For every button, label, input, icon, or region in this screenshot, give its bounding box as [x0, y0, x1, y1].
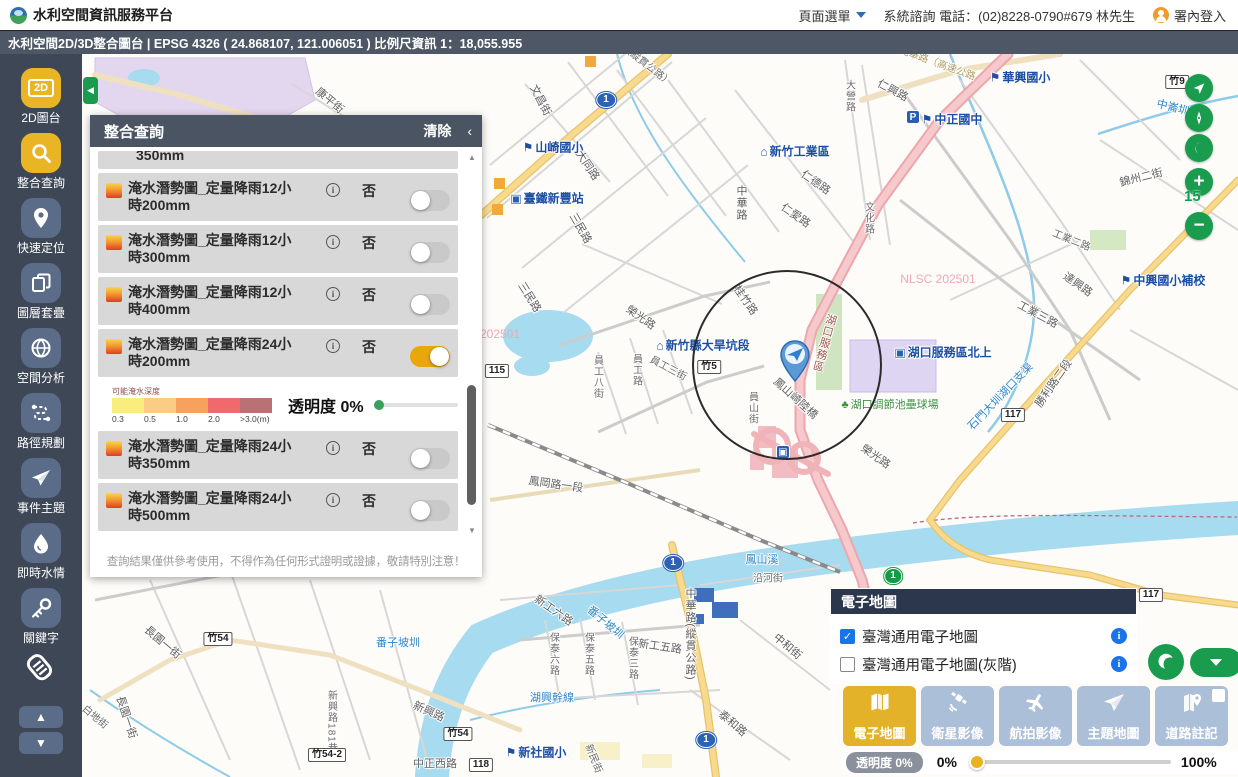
- basemap-collapse-button[interactable]: [1190, 648, 1238, 677]
- layer-label: 淹水潛勢圖_定量降雨24小 時200mm: [128, 336, 320, 370]
- sidebar-item-label: 路徑規劃: [17, 436, 65, 451]
- sidebar-item-label: 關鍵字: [23, 631, 59, 646]
- layer-flag: 否: [362, 337, 376, 357]
- person-icon: [1153, 7, 1169, 23]
- page-menu-button[interactable]: 頁面選單: [799, 6, 866, 25]
- basemap-options: ✓臺灣通用電子地圖i臺灣通用電子地圖(灰階)i: [830, 614, 1137, 684]
- layer-toggle[interactable]: [410, 448, 450, 469]
- scroll-up-icon[interactable]: ▲: [466, 153, 478, 162]
- legend-tick: 2.0: [208, 414, 240, 424]
- query-panel-header: 整合查詢 清除 ‹: [90, 115, 482, 147]
- map-status-text: 水利空間2D/3D整合圖台 | EPSG 4326 ( 24.868107, 1…: [8, 33, 522, 52]
- sidebar-item-label: 空間分析: [17, 371, 65, 386]
- legend-tick: 0.5: [144, 414, 176, 424]
- basemap-button-衛星影像[interactable]: 衛星影像: [921, 686, 994, 746]
- query-location-marker: [778, 339, 812, 383]
- sidebar: 2D2D圖台整合查詢快速定位圖層套疊空間分析路徑規劃事件主題即時水情關鍵字 ▲ …: [0, 54, 82, 777]
- route-icon: [21, 393, 61, 433]
- sidebar-item-關鍵字[interactable]: 關鍵字: [21, 588, 61, 646]
- legend-tick: >3.0(m): [240, 414, 272, 424]
- legend-color-step: [240, 398, 272, 413]
- layer-row: 淹水潛勢圖_定量降雨24小 時500mmi否: [98, 483, 458, 531]
- layer-row-partial: 350mm: [98, 151, 458, 169]
- opacity-slider-knob[interactable]: [969, 754, 985, 770]
- basemap-switcher: 電子地圖衛星影像航拍影像主題地圖道路註記: [843, 686, 1238, 746]
- legend-color-step: [208, 398, 240, 413]
- road-annotation-checkbox[interactable]: [1212, 689, 1225, 702]
- brush-icon: [1156, 652, 1176, 672]
- layer-flag: 否: [362, 285, 376, 305]
- scroll-down-icon[interactable]: ▼: [466, 526, 478, 535]
- info-icon[interactable]: i: [1111, 656, 1127, 672]
- locate-button[interactable]: [1185, 74, 1213, 102]
- compass-icon: [1191, 110, 1207, 126]
- layer-row: 淹水潛勢圖_定量降雨24小 時200mmi否: [98, 329, 458, 377]
- basemap-option-checkbox[interactable]: [840, 657, 855, 672]
- water-drop-icon: [21, 523, 61, 563]
- layer-info-icon[interactable]: i: [326, 441, 340, 455]
- sidebar-item-label: 快速定位: [17, 241, 65, 256]
- layer-list: 350mm淹水潛勢圖_定量降雨12小 時200mmi否淹水潛勢圖_定量降雨12小…: [90, 147, 464, 540]
- layer-toggle[interactable]: [410, 500, 450, 521]
- sidebar-item-路徑規劃[interactable]: 路徑規劃: [17, 393, 65, 451]
- basemap-panel: 電子地圖 ✓臺灣通用電子地圖i臺灣通用電子地圖(灰階)i: [830, 588, 1137, 684]
- chevron-down-icon: [1210, 659, 1222, 666]
- layer-info-icon[interactable]: i: [326, 183, 340, 197]
- toggle-knob: [430, 347, 449, 366]
- globe-icon: [21, 328, 61, 368]
- 2d-map-icon: 2D: [21, 68, 61, 108]
- navigation-arrow-icon: [1191, 80, 1207, 96]
- legend-tick: 0.3: [112, 414, 144, 424]
- brand: 水利空間資訊服務平台: [10, 5, 173, 25]
- basemap-button-航拍影像[interactable]: 航拍影像: [999, 686, 1072, 746]
- layer-row-partial-text: 350mm: [136, 151, 184, 163]
- zoom-level: 15: [1184, 188, 1201, 205]
- flood-layer-legend-icon: [106, 235, 122, 250]
- sidebar-item-label: 即時水情: [17, 566, 65, 581]
- sidebar-item-2D圖台[interactable]: 2D2D圖台: [21, 68, 61, 126]
- legend-ramp-block: 可能淹水深度0.30.51.02.0>3.0(m): [112, 386, 284, 424]
- tilt-view-button[interactable]: [1185, 134, 1213, 162]
- layer-flag: 否: [362, 491, 376, 511]
- road-pin-icon: [1179, 690, 1205, 719]
- basemap-button-道路註記[interactable]: 道路註記: [1155, 686, 1228, 746]
- query-panel-title: 整合查詢: [104, 121, 423, 142]
- sidebar-items: 2D2D圖台整合查詢快速定位圖層套疊空間分析路徑規劃事件主題即時水情關鍵字: [0, 68, 82, 653]
- toggle-knob: [411, 191, 430, 210]
- basemap-option-label: 臺灣通用電子地圖: [862, 626, 1111, 647]
- scrollbar-thumb[interactable]: [467, 385, 476, 505]
- login-button[interactable]: 署內登入: [1153, 6, 1226, 25]
- legend-ticks: 0.30.51.02.0>3.0(m): [112, 414, 288, 424]
- layer-toggle[interactable]: [410, 294, 450, 315]
- flood-depth-legend: 可能淹水深度0.30.51.02.0>3.0(m)透明度 0%: [98, 381, 458, 427]
- panel-collapse-icon[interactable]: ‹: [467, 123, 472, 139]
- integrated-query-panel: 整合查詢 清除 ‹ 350mm淹水潛勢圖_定量降雨12小 時200mmi否淹水潛…: [90, 115, 482, 577]
- flood-layer-legend-icon: [106, 287, 122, 302]
- panel-collapse-tab[interactable]: ◀: [83, 77, 98, 104]
- map-status-bar: 水利空間2D/3D整合圖台 | EPSG 4326 ( 24.868107, 1…: [0, 30, 1238, 54]
- opacity-label: 透明度 0%: [846, 752, 923, 773]
- basemap-option: 臺灣通用電子地圖(灰階)i: [840, 650, 1127, 678]
- sidebar-scroll-up-button[interactable]: ▲: [19, 706, 63, 728]
- layer-info-icon[interactable]: i: [326, 493, 340, 507]
- toggle-knob: [411, 449, 430, 468]
- layer-toggle[interactable]: [410, 346, 450, 367]
- toggle-knob: [411, 501, 430, 520]
- sidebar-item-事件主題[interactable]: 事件主題: [17, 458, 65, 516]
- sidebar-scroll-down-button[interactable]: ▼: [19, 732, 63, 754]
- layer-label: 淹水潛勢圖_定量降雨12小 時300mm: [128, 232, 320, 266]
- compass-button[interactable]: [1185, 104, 1213, 132]
- map-style-button[interactable]: [1148, 644, 1184, 680]
- layer-info-icon[interactable]: i: [326, 339, 340, 353]
- location-pin-icon: [21, 198, 61, 238]
- crescent-icon: [1191, 140, 1207, 156]
- sidebar-item-整合查詢[interactable]: 整合查詢: [17, 133, 65, 191]
- sidebar-item-label: 2D圖台: [21, 111, 60, 126]
- layers-icon: [21, 263, 61, 303]
- basemap-button-label: 主題地圖: [1087, 723, 1139, 742]
- layer-row: 淹水潛勢圖_定量降雨12小 時200mmi否: [98, 173, 458, 221]
- legend-color-step: [176, 398, 208, 413]
- layer-row: 淹水潛勢圖_定量降雨12小 時400mmi否: [98, 277, 458, 325]
- layer-flag: 否: [362, 181, 376, 201]
- opacity-min: 0%: [937, 754, 957, 770]
- basemap-button-主題地圖[interactable]: 主題地圖: [1077, 686, 1150, 746]
- layer-toggle[interactable]: [410, 242, 450, 263]
- sidebar-item-空間分析[interactable]: 空間分析: [17, 328, 65, 386]
- basemap-opacity-bar: 透明度 0% 0% 100%: [840, 750, 1238, 774]
- airplane-icon: [1023, 690, 1049, 719]
- sidebar-item-快速定位[interactable]: 快速定位: [17, 198, 65, 256]
- layer-label: 淹水潛勢圖_定量降雨24小 時500mm: [128, 490, 320, 524]
- legend-color-step: [112, 398, 144, 413]
- layer-label: 淹水潛勢圖_定量降雨12小 時400mm: [128, 284, 320, 318]
- sidebar-item-圖層套疊[interactable]: 圖層套疊: [17, 263, 65, 321]
- basemap-panel-title: 電子地圖: [830, 588, 1137, 614]
- zoom-out-button[interactable]: −: [1185, 212, 1213, 240]
- flood-layer-legend-icon: [106, 183, 122, 198]
- layer-flag: 否: [362, 233, 376, 253]
- annotation-pencil-icon[interactable]: [22, 650, 60, 688]
- paper-plane-icon: [21, 458, 61, 498]
- layer-opacity-knob[interactable]: [374, 400, 384, 410]
- key-icon: [21, 588, 61, 628]
- disclaimer-text: 查詢結果僅供參考使用，不得作為任何形式證明或證據，敬請特別注意！: [90, 553, 482, 569]
- basemap-option-checkbox[interactable]: ✓: [840, 629, 855, 644]
- layer-label: 淹水潛勢圖_定量降雨24小 時350mm: [128, 438, 320, 472]
- layer-row: 淹水潛勢圖_定量降雨24小 時350mmi否: [98, 431, 458, 479]
- legend-tick: 1.0: [176, 414, 208, 424]
- sidebar-item-label: 整合查詢: [17, 176, 65, 191]
- layer-flag: 否: [362, 439, 376, 459]
- map-icon: [867, 690, 893, 719]
- satellite-icon: [945, 690, 971, 719]
- app-root: 水利空間資訊服務平台 頁面選單 系統諮詢 電話：(02)8228-0790#67…: [0, 0, 1238, 777]
- legend-color-step: [144, 398, 176, 413]
- layer-opacity-slider[interactable]: [374, 403, 458, 407]
- layer-info-icon[interactable]: i: [326, 235, 340, 249]
- top-header: 水利空間資訊服務平台 頁面選單 系統諮詢 電話：(02)8228-0790#67…: [0, 0, 1238, 30]
- flood-layer-legend-icon: [106, 441, 122, 456]
- info-icon[interactable]: i: [1111, 628, 1127, 644]
- app-title: 水利空間資訊服務平台: [33, 5, 173, 25]
- flood-layer-legend-icon: [106, 493, 122, 508]
- basemap-button-label: 衛星影像: [931, 723, 983, 742]
- layer-list-scrollbar[interactable]: ▲ ▼: [466, 153, 478, 535]
- clear-button[interactable]: 清除: [423, 121, 451, 141]
- agency-logo-icon: [10, 7, 27, 24]
- search-icon: [21, 133, 61, 173]
- chevron-down-icon: [856, 12, 866, 18]
- sidebar-item-即時水情[interactable]: 即時水情: [17, 523, 65, 581]
- paper-plane-icon: [1101, 690, 1127, 719]
- basemap-button-電子地圖[interactable]: 電子地圖: [843, 686, 916, 746]
- toggle-knob: [411, 243, 430, 262]
- sidebar-item-label: 圖層套疊: [17, 306, 65, 321]
- legend-title: 可能淹水深度: [112, 386, 284, 397]
- layer-opacity-label: 透明度 0%: [288, 393, 364, 417]
- opacity-slider[interactable]: [971, 760, 1171, 764]
- opacity-max: 100%: [1181, 754, 1217, 770]
- layer-info-icon[interactable]: i: [326, 287, 340, 301]
- flood-layer-legend-icon: [106, 339, 122, 354]
- layer-label: 淹水潛勢圖_定量降雨12小 時200mm: [128, 180, 320, 214]
- basemap-button-label: 航拍影像: [1009, 723, 1061, 742]
- sidebar-item-label: 事件主題: [17, 501, 65, 516]
- basemap-option-label: 臺灣通用電子地圖(灰階): [862, 654, 1111, 675]
- basemap-option: ✓臺灣通用電子地圖i: [840, 622, 1127, 650]
- basemap-button-label: 電子地圖: [853, 723, 905, 742]
- layer-toggle[interactable]: [410, 190, 450, 211]
- legend-color-ramp: [112, 398, 272, 413]
- layer-row: 淹水潛勢圖_定量降雨12小 時300mmi否: [98, 225, 458, 273]
- toggle-knob: [411, 295, 430, 314]
- contact-info: 系統諮詢 電話：(02)8228-0790#679 林先生: [884, 6, 1135, 25]
- basemap-button-label: 道路註記: [1165, 723, 1217, 742]
